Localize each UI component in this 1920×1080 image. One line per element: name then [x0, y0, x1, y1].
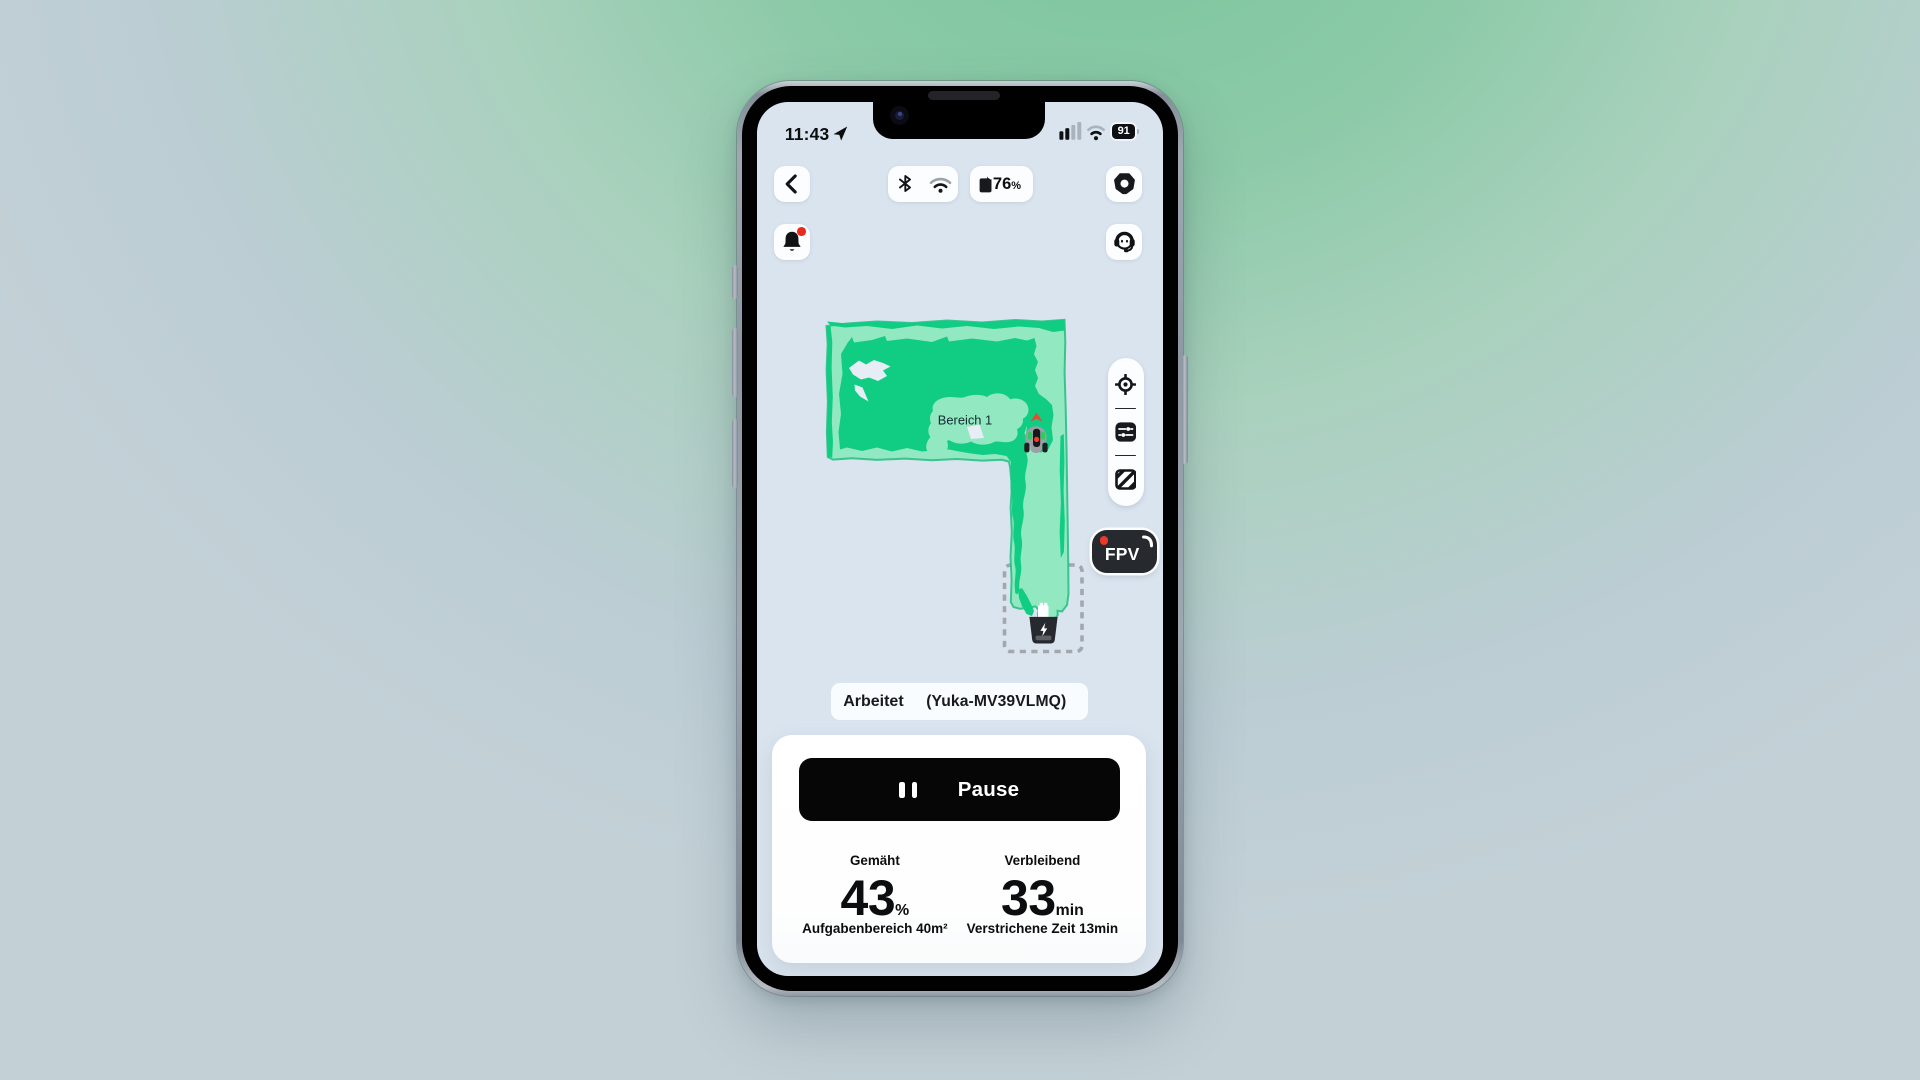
svg-text:Bereich 1: Bereich 1 [938, 412, 992, 427]
